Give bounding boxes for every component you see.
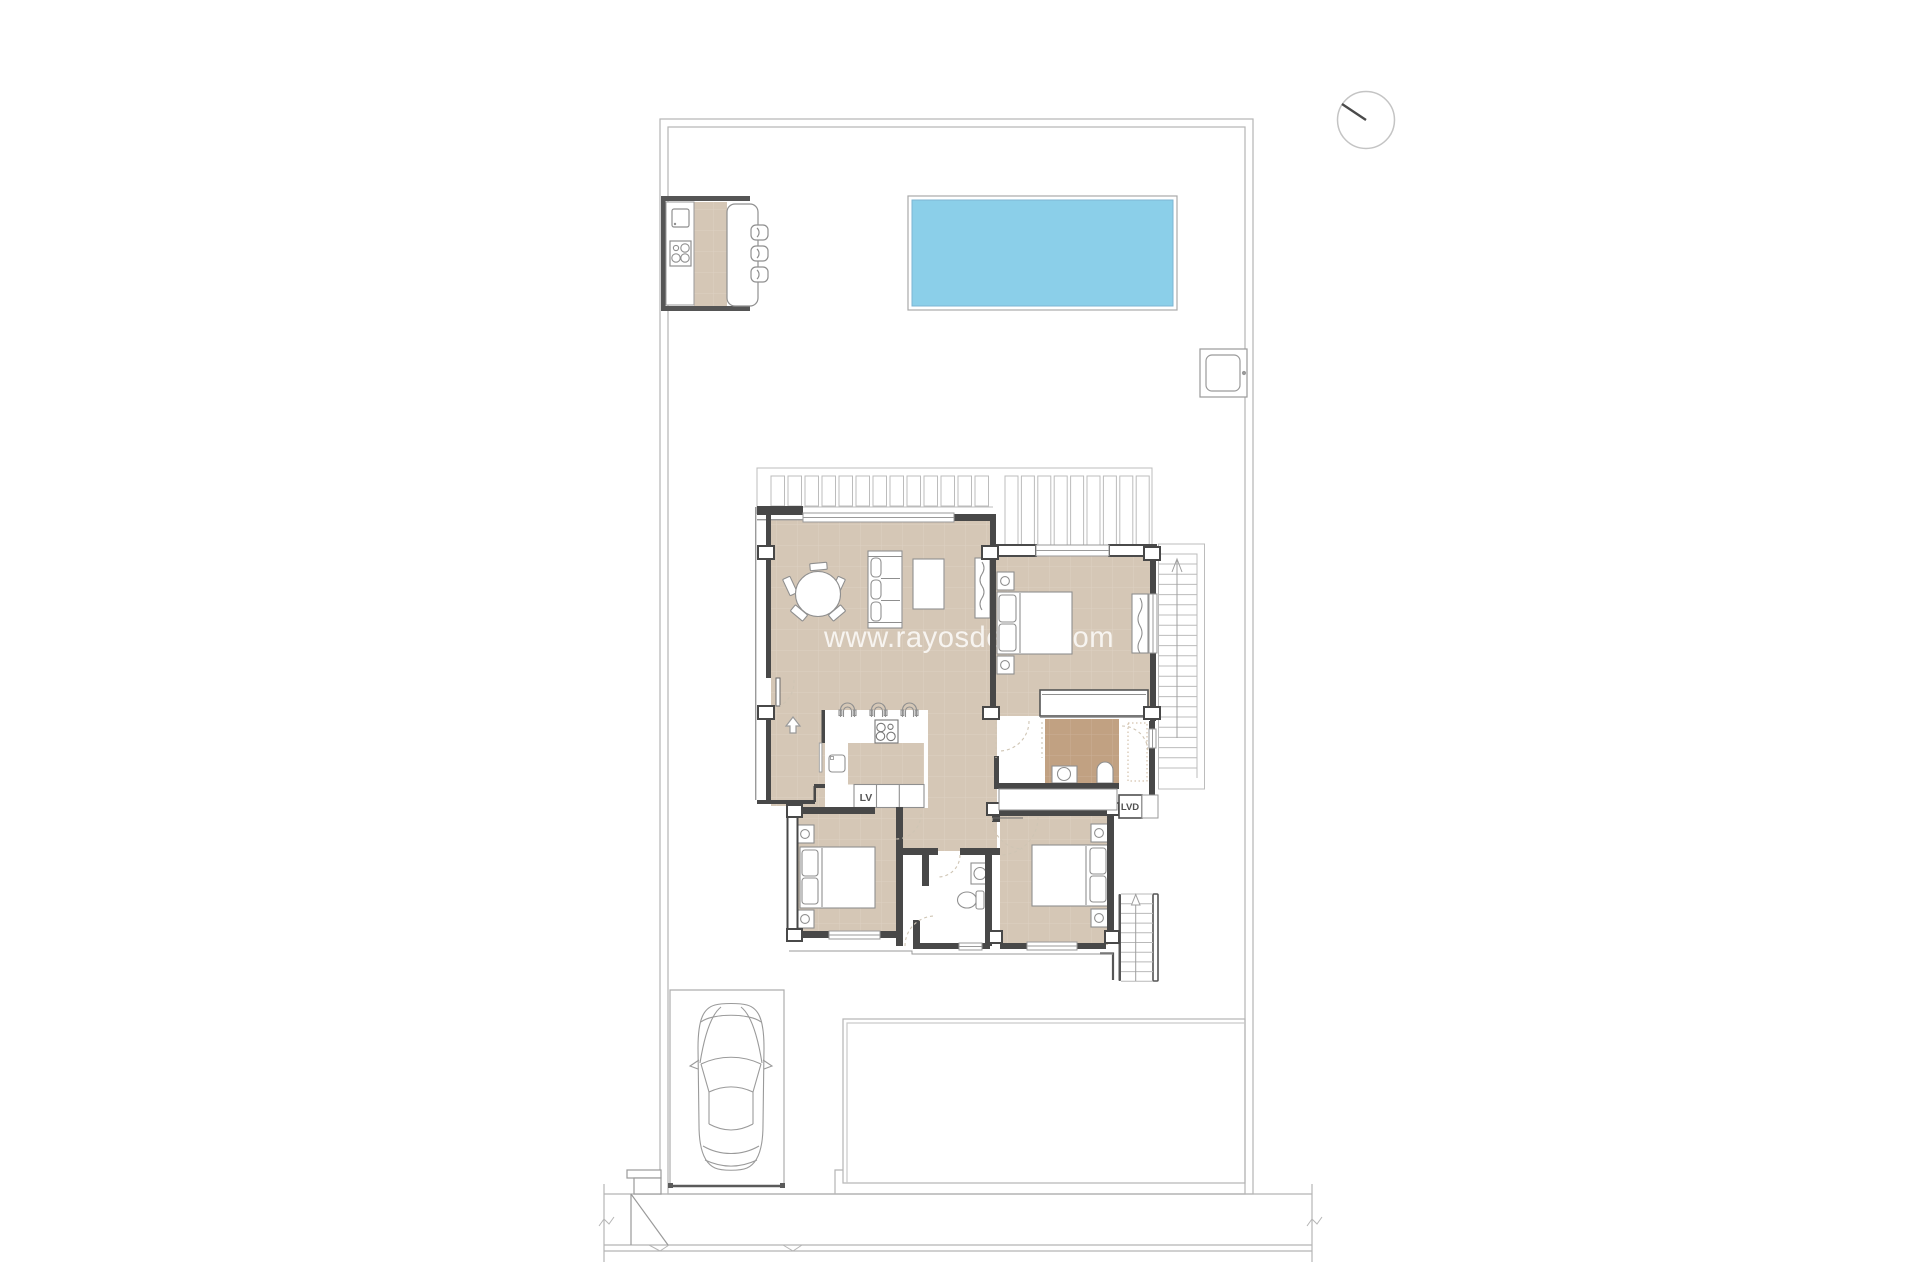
svg-text:LVD: LVD xyxy=(1121,802,1139,813)
svg-text:LV: LV xyxy=(860,792,873,804)
